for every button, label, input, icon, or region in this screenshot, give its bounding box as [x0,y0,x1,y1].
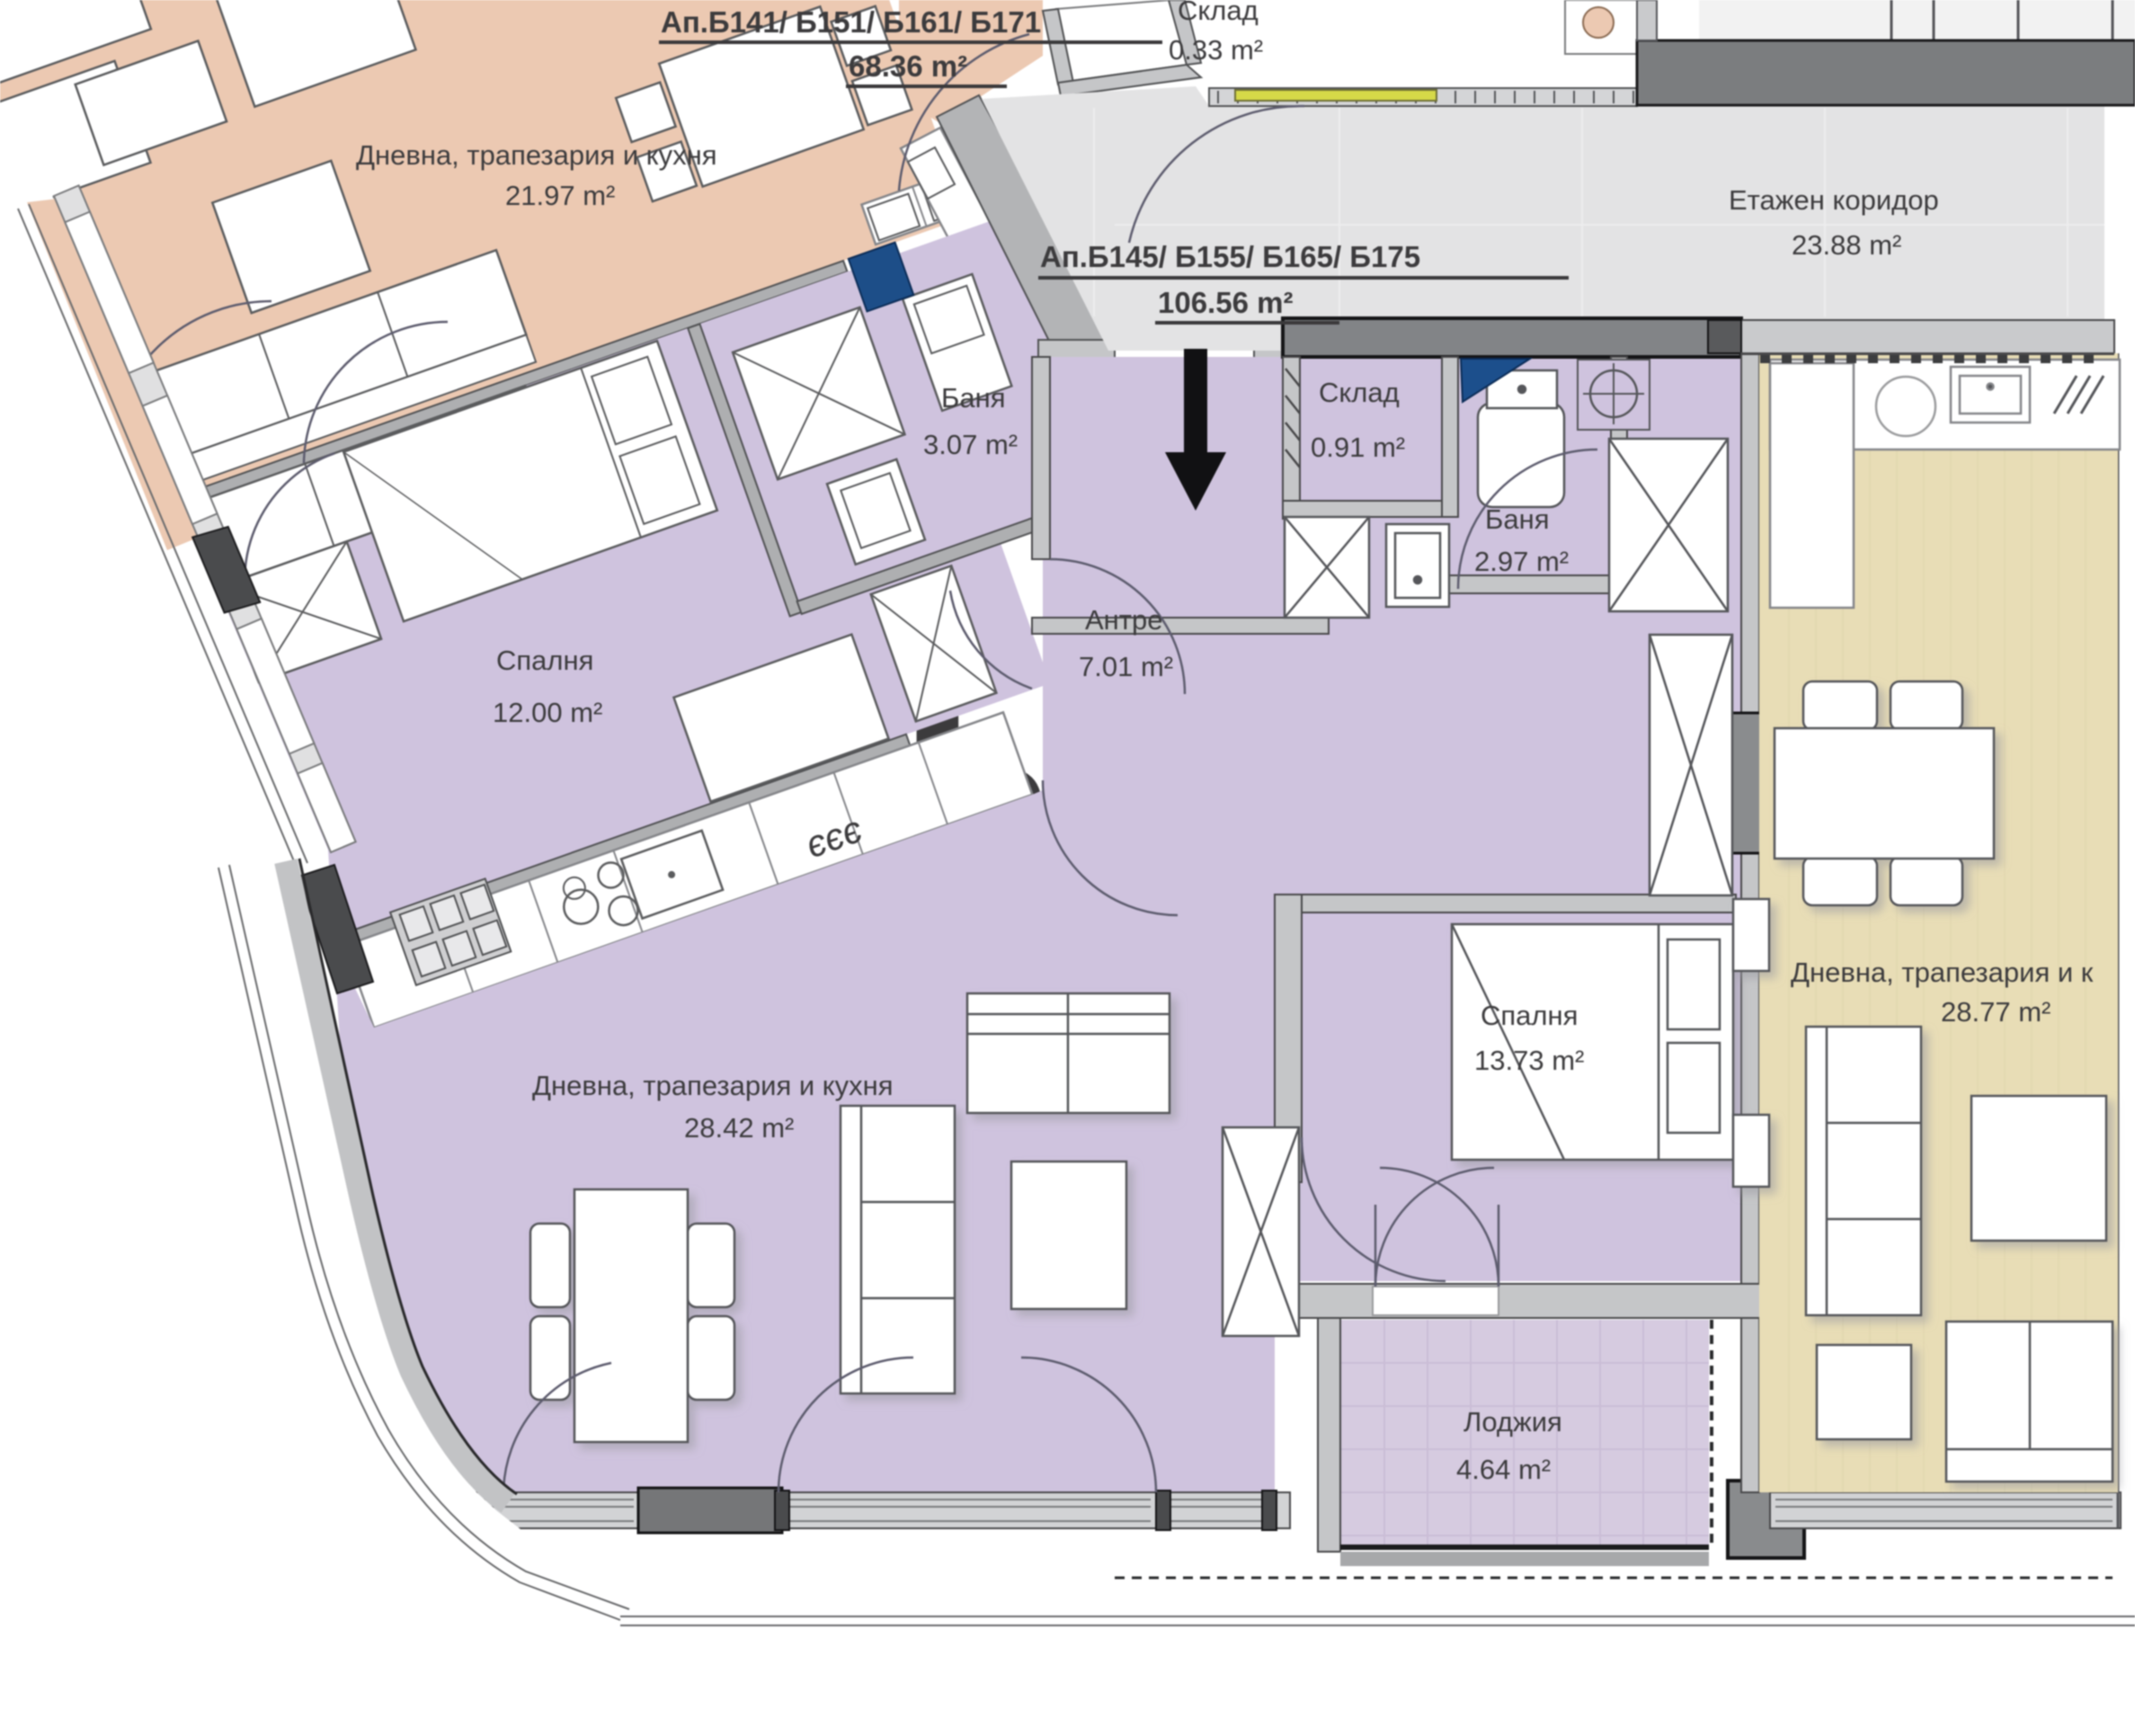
svg-text:21.97 m²: 21.97 m² [505,180,615,211]
svg-text:Ап.Б141/ Б151/ Б161/ Б171: Ап.Б141/ Б151/ Б161/ Б171 [661,5,1041,39]
svg-text:Спалня: Спалня [1481,1000,1578,1031]
svg-text:Лоджия: Лоджия [1463,1406,1562,1438]
svg-text:28.42 m²: 28.42 m² [684,1112,794,1144]
svg-text:Дневна, трапезария и кухня: Дневна, трапезария и кухня [356,139,717,171]
svg-text:Дневна, трапезария и к: Дневна, трапезария и к [1791,957,2094,988]
svg-text:Дневна, трапезария и кухня: Дневна, трапезария и кухня [532,1070,894,1101]
svg-text:Етажен коридор: Етажен коридор [1729,184,1939,216]
svg-text:Ап.Б145/ Б155/ Б165/ Б175: Ап.Б145/ Б155/ Б165/ Б175 [1040,240,1420,273]
svg-text:Антре: Антре [1085,604,1162,636]
svg-text:Склад: Склад [1178,0,1259,26]
svg-text:4.64 m²: 4.64 m² [1456,1454,1551,1485]
svg-text:68.36 m²: 68.36 m² [849,49,967,83]
svg-text:0.91 m²: 0.91 m² [1311,432,1405,463]
svg-text:Баня: Баня [941,382,1006,414]
svg-text:Склад: Склад [1319,377,1400,408]
svg-text:Баня: Баня [1485,503,1550,535]
svg-text:13.73 m²: 13.73 m² [1474,1045,1584,1076]
svg-text:0.33 m²: 0.33 m² [1169,34,1263,66]
svg-text:28.77 m²: 28.77 m² [1941,996,2050,1028]
svg-text:3.07 m²: 3.07 m² [923,429,1018,460]
svg-text:2.97 m²: 2.97 m² [1474,546,1569,577]
svg-text:23.88 m²: 23.88 m² [1792,229,1901,261]
svg-text:Спалня: Спалня [496,645,593,676]
svg-text:106.56 m²: 106.56 m² [1158,286,1293,319]
svg-text:12.00 m²: 12.00 m² [493,697,602,728]
svg-text:7.01 m²: 7.01 m² [1079,651,1173,682]
